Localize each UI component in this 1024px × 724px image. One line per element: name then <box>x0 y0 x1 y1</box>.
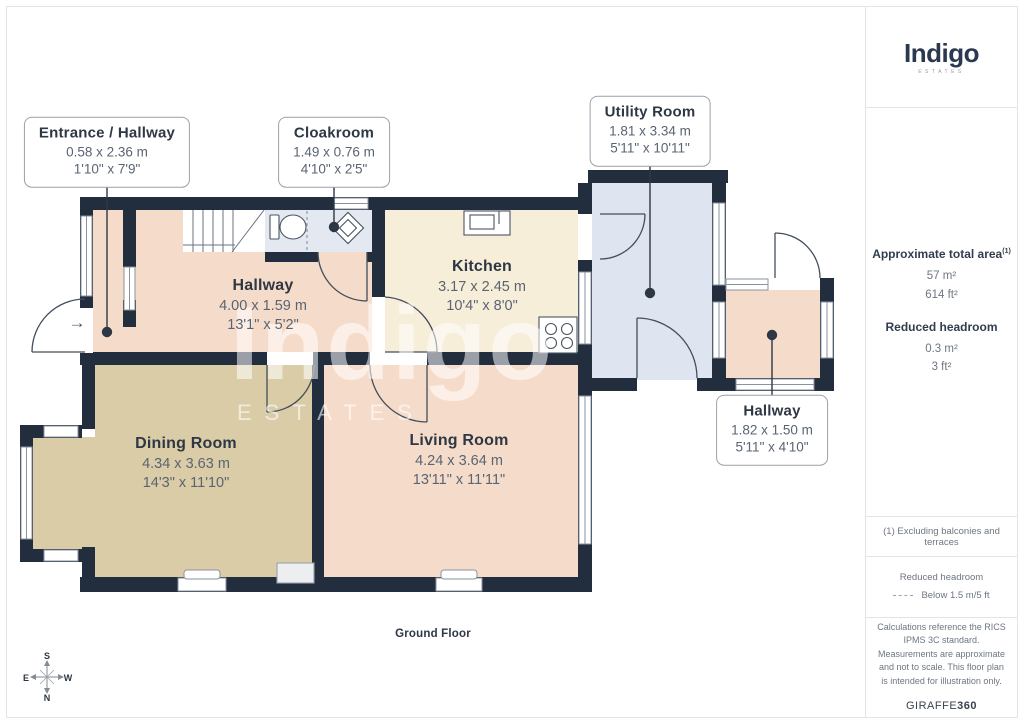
footnote-text: (1) Excluding balconies and terraces <box>866 526 1017 548</box>
floor-label: Ground Floor <box>395 628 471 640</box>
room-dims-metric: 4.00 x 1.59 m <box>219 297 307 316</box>
reduced-headroom-values: 0.3 m² 3 ft² <box>925 340 958 377</box>
giraffe360-brand: GIRAFFE360 <box>906 698 977 715</box>
compass-north: N <box>44 693 51 703</box>
disclaimer-section: Calculations reference the RICS IPMS 3C … <box>866 618 1017 717</box>
info-sidebar: Indigo ESTATES Approximate total area(1)… <box>865 7 1017 717</box>
reduced-headroom-m2: 0.3 m² <box>925 340 958 358</box>
room-label-hallway: Hallway 4.00 x 1.59 m 13'1" x 5'2" <box>219 277 307 335</box>
total-area-ft2: 614 ft² <box>925 286 958 304</box>
legend-section: Reduced headroom Below 1.5 m/5 ft <box>866 557 1017 618</box>
porch-hallway-floor <box>726 290 820 378</box>
total-area-m2: 57 m² <box>925 267 958 285</box>
total-area-values: 57 m² 614 ft² <box>925 267 958 304</box>
room-label-cloakroom: Cloakroom 1.49 x 0.76 m 4'10" x 2'5" <box>278 117 390 188</box>
hearth <box>277 563 314 583</box>
logo-section: Indigo ESTATES <box>866 7 1017 108</box>
utility-floor <box>590 183 712 380</box>
room-dims-imperial: 4'10" x 2'5" <box>293 161 375 178</box>
compass-south: S <box>44 651 50 661</box>
room-dims-imperial: 5'11" x 4'10" <box>731 439 813 456</box>
room-label-kitchen: Kitchen 3.17 x 2.45 m 10'4" x 8'0" <box>438 258 526 316</box>
room-dims-imperial: 13'1" x 5'2" <box>219 316 307 335</box>
compass-east: E <box>23 673 29 683</box>
room-label-entrance-hallway: Entrance / Hallway 0.58 x 2.36 m 1'10" x… <box>24 117 190 188</box>
room-label-utility-room: Utility Room 1.81 x 3.34 m 5'11" x 10'11… <box>590 96 711 167</box>
entrance-arrow-icon: → <box>69 313 86 333</box>
disclaimer-text: Calculations reference the RICS IPMS 3C … <box>877 621 1006 689</box>
room-name: Living Room <box>409 432 508 450</box>
room-name: Kitchen <box>438 258 526 276</box>
room-dims-metric: 3.17 x 2.45 m <box>438 278 526 297</box>
toilet-tank <box>270 215 279 239</box>
room-dims-imperial: 5'11" x 10'11" <box>605 140 696 157</box>
footnote-section: (1) Excluding balconies and terraces <box>866 517 1017 557</box>
room-name: Dining Room <box>135 435 237 453</box>
room-dims-metric: 0.58 x 2.36 m <box>39 144 175 161</box>
dashed-line-swatch <box>893 595 913 596</box>
footnote-ref: (1) <box>1002 248 1011 255</box>
brand-logo-sub: ESTATES <box>918 69 965 75</box>
stairs-floor <box>183 210 265 252</box>
room-dims-imperial: 10'4" x 8'0" <box>438 297 526 316</box>
room-dims-imperial: 1'10" x 7'9" <box>39 161 175 178</box>
total-area-label: Approximate total area(1) <box>872 247 1011 261</box>
room-label-porch-hallway: Hallway 1.82 x 1.50 m 5'11" x 4'10" <box>716 395 828 466</box>
room-name: Cloakroom <box>293 125 375 142</box>
compass-icon <box>30 660 64 694</box>
room-dims-metric: 1.82 x 1.50 m <box>731 422 813 439</box>
reduced-headroom-ft2: 3 ft² <box>925 358 958 376</box>
room-label-dining-room: Dining Room 4.34 x 3.63 m 14'3" x 11'10" <box>135 435 237 493</box>
room-dims-metric: 1.81 x 3.34 m <box>605 123 696 140</box>
legend-title: Reduced headroom <box>900 569 983 587</box>
room-dims-imperial: 13'11" x 11'11" <box>409 471 508 490</box>
room-name: Entrance / Hallway <box>39 125 175 142</box>
toilet-bowl <box>280 215 306 239</box>
floorplan-page: Indigo ESTATES Entrance / Hallway 0.58 x… <box>0 0 1024 724</box>
room-label-living-room: Living Room 4.24 x 3.64 m 13'11" x 11'11… <box>409 432 508 490</box>
legend-row: Below 1.5 m/5 ft <box>893 587 989 605</box>
room-dims-imperial: 14'3" x 11'10" <box>135 474 237 493</box>
room-name: Hallway <box>219 277 307 295</box>
room-name: Hallway <box>731 403 813 420</box>
watermark-sub: ESTATES <box>237 402 425 424</box>
room-name: Utility Room <box>605 104 696 121</box>
brand-logo: Indigo <box>904 40 979 66</box>
room-dims-metric: 4.24 x 3.64 m <box>409 452 508 471</box>
legend-value: Below 1.5 m/5 ft <box>921 590 989 601</box>
area-section: Approximate total area(1) 57 m² 614 ft² … <box>866 108 1017 517</box>
room-dims-metric: 1.49 x 0.76 m <box>293 144 375 161</box>
bay-floor <box>32 437 95 549</box>
compass-west: W <box>64 673 73 683</box>
room-dims-metric: 4.34 x 3.63 m <box>135 455 237 474</box>
reduced-headroom-label: Reduced headroom <box>885 320 997 334</box>
